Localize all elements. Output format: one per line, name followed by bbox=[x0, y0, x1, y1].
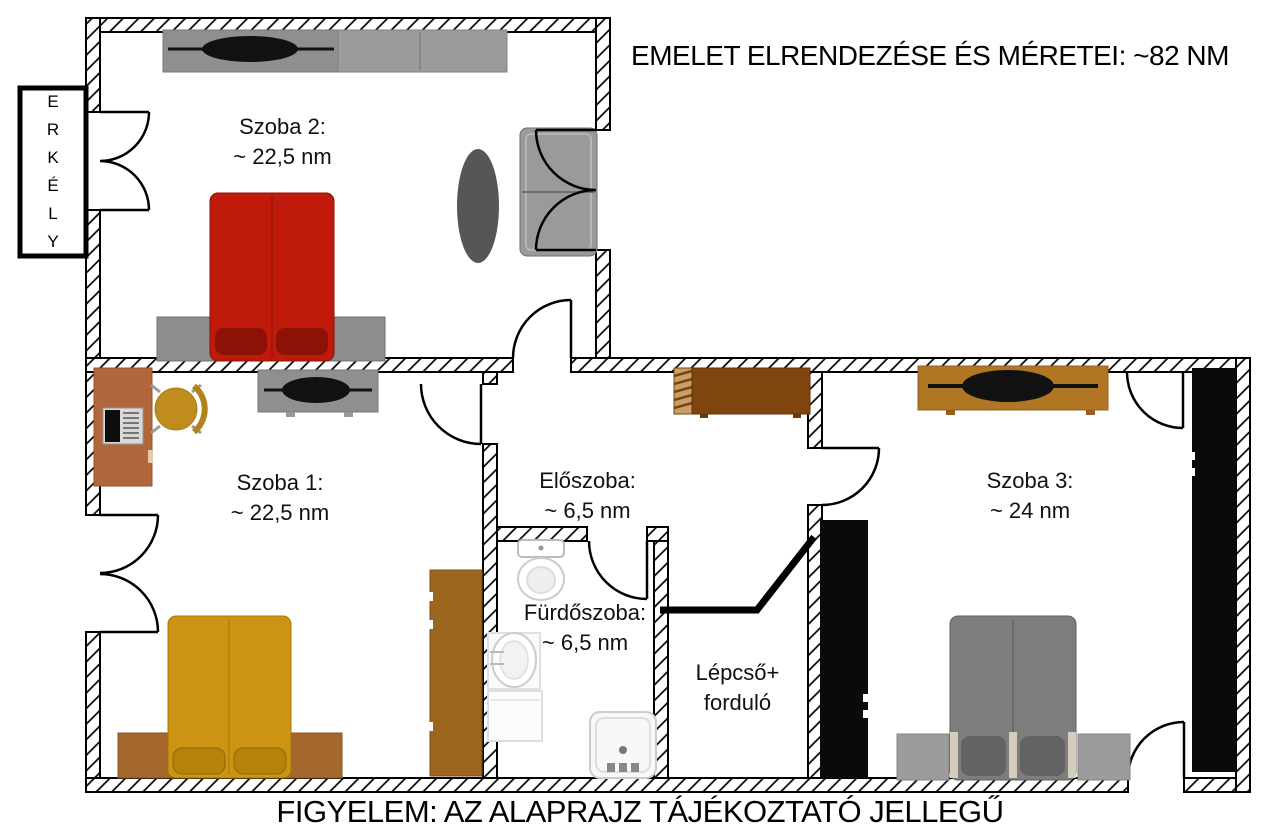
room-label-eloszoba: Előszoba: ~ 6,5 nm bbox=[495, 466, 680, 527]
wall bbox=[596, 250, 610, 372]
wardrobe-notch bbox=[428, 722, 433, 731]
room-name: forduló bbox=[650, 688, 825, 718]
pillow-icon bbox=[961, 736, 1006, 776]
tv-icon bbox=[282, 377, 350, 403]
room-label-szoba3: Szoba 3: ~ 24 nm bbox=[930, 466, 1130, 527]
plan-footer-disclaimer: FIGYELEM: AZ ALAPRAJZ TÁJÉKOZTATÓ JELLEG… bbox=[0, 794, 1280, 830]
balcony-letter: K bbox=[47, 148, 58, 168]
balcony-french-door-icon bbox=[100, 112, 149, 210]
tv-stand-leg bbox=[286, 412, 295, 417]
balcony-letter: É bbox=[47, 176, 58, 196]
wardrobe-notch bbox=[863, 710, 868, 718]
pillow-icon bbox=[1020, 736, 1065, 776]
plan-title: EMELET ELRENDEZÉSE ÉS MÉRETEI: ~82 NM bbox=[600, 40, 1260, 72]
wardrobe-notch bbox=[428, 592, 433, 601]
room-label-szoba1: Szoba 1: ~ 22,5 nm bbox=[170, 468, 390, 529]
tv-icon bbox=[202, 36, 298, 62]
wardrobe-notch bbox=[1190, 452, 1195, 460]
office-chair-icon bbox=[151, 385, 205, 433]
sideboard-leg bbox=[700, 414, 708, 418]
wardrobe-black-icon bbox=[820, 520, 868, 778]
wall bbox=[571, 358, 1250, 372]
furniture-eloszoba bbox=[674, 368, 810, 418]
bed-frame-strip bbox=[1068, 732, 1076, 778]
room-label-furdoszoba: Fürdőszoba: ~ 6,5 nm bbox=[490, 598, 680, 659]
wardrobe-notch bbox=[428, 620, 433, 629]
room-size: ~ 24 nm bbox=[930, 496, 1130, 526]
wall bbox=[596, 18, 610, 130]
sideboard-icon bbox=[692, 368, 810, 414]
shower-icon bbox=[590, 712, 656, 778]
tv-stand-leg bbox=[946, 410, 955, 415]
bed-frame-strip bbox=[1009, 732, 1017, 778]
room-name: Lépcső+ bbox=[650, 658, 825, 688]
tv-stand-leg bbox=[344, 412, 353, 417]
room-name: Előszoba: bbox=[495, 466, 680, 496]
laptop-screen bbox=[105, 410, 120, 442]
furniture-szoba2 bbox=[157, 30, 597, 361]
wall bbox=[1236, 358, 1250, 792]
pillow-icon bbox=[173, 748, 225, 774]
balcony-letter: E bbox=[47, 92, 58, 112]
room-name: Szoba 2: bbox=[175, 112, 390, 142]
wardrobe-notch bbox=[863, 694, 868, 702]
toilet-icon bbox=[518, 540, 564, 600]
side-table-icon bbox=[457, 149, 499, 263]
nightstand-icon bbox=[1078, 734, 1130, 780]
furniture-szoba1 bbox=[94, 368, 482, 778]
wall bbox=[483, 372, 497, 384]
balcony-letter: R bbox=[47, 120, 59, 140]
room-size: ~ 22,5 nm bbox=[175, 142, 390, 172]
szoba1-french-door-icon bbox=[100, 515, 158, 632]
pillow-icon bbox=[215, 328, 267, 355]
balcony-letter: Y bbox=[47, 232, 58, 252]
balcony-label: E R K É L Y bbox=[20, 92, 86, 252]
room-name: Szoba 1: bbox=[170, 468, 390, 498]
wardrobe-notch bbox=[1190, 468, 1195, 476]
desk-handle bbox=[148, 450, 153, 463]
room-size: ~ 22,5 nm bbox=[170, 498, 390, 528]
nightstand-icon bbox=[897, 734, 949, 780]
wall bbox=[497, 527, 587, 541]
pillow-icon bbox=[234, 748, 286, 774]
sideboard-leg bbox=[793, 414, 801, 418]
tv-icon bbox=[962, 370, 1054, 402]
stairs-rail-icon bbox=[660, 537, 814, 610]
szoba1-hall-door-icon bbox=[421, 384, 481, 444]
room-name: Szoba 3: bbox=[930, 466, 1130, 496]
szoba3-top-door-icon bbox=[1127, 372, 1183, 428]
room-label-lepcso: Lépcső+ forduló bbox=[650, 658, 825, 719]
szoba3-left-door-icon bbox=[822, 448, 879, 505]
bed-frame-strip bbox=[950, 732, 958, 778]
washing-machine-icon bbox=[488, 691, 542, 741]
bathroom-door-icon bbox=[589, 541, 647, 599]
wardrobe-icon bbox=[338, 30, 507, 72]
wardrobe-brown-icon bbox=[430, 570, 482, 776]
szoba3-bottom-door-icon bbox=[1128, 722, 1184, 778]
room-name: Fürdőszoba: bbox=[490, 598, 680, 628]
room-label-szoba2: Szoba 2: ~ 22,5 nm bbox=[175, 112, 390, 173]
floorplan-page: EMELET ELRENDEZÉSE ÉS MÉRETEI: ~82 NM FI… bbox=[0, 0, 1280, 840]
wall bbox=[86, 632, 100, 792]
szoba2-hall-door-icon bbox=[513, 300, 571, 358]
shoe-rack-icon bbox=[674, 368, 692, 414]
balcony-letter: L bbox=[48, 204, 57, 224]
tv-stand-leg bbox=[1086, 410, 1095, 415]
wardrobe-black-icon bbox=[1192, 368, 1236, 772]
pillow-icon bbox=[276, 328, 328, 355]
room-size: ~ 6,5 nm bbox=[490, 628, 680, 658]
wall bbox=[647, 527, 668, 541]
fixtures-furdoszoba bbox=[488, 540, 656, 778]
room-size: ~ 6,5 nm bbox=[495, 496, 680, 526]
